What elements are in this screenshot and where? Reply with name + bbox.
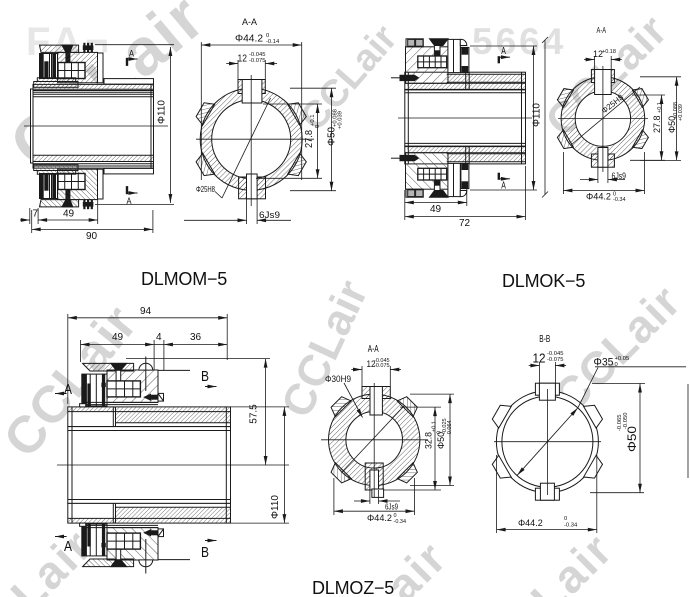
svg-text:+0.039: +0.039 — [338, 111, 344, 129]
svg-text:6Js9: 6Js9 — [385, 503, 398, 512]
svg-text:Φ110: Φ110 — [532, 103, 543, 127]
svg-text:-0.050: -0.050 — [623, 413, 629, 429]
svg-text:-0.34: -0.34 — [564, 523, 578, 529]
svg-text:+0.18: +0.18 — [602, 49, 616, 55]
svg-text:6Js9: 6Js9 — [259, 210, 280, 221]
svg-text:0: 0 — [315, 125, 321, 128]
svg-text:72: 72 — [459, 218, 471, 229]
svg-text:A-A: A-A — [597, 25, 607, 35]
svg-text:-0.064: -0.064 — [447, 420, 453, 436]
svg-text:-0.075: -0.075 — [374, 363, 390, 369]
svg-text:Φ110: Φ110 — [270, 495, 281, 519]
svg-text:90: 90 — [86, 231, 98, 242]
svg-text:DLMOZ−5: DLMOZ−5 — [312, 578, 394, 597]
svg-text:B: B — [201, 368, 209, 385]
svg-text:49: 49 — [430, 204, 442, 215]
svg-text:+0.1: +0.1 — [657, 102, 663, 113]
svg-text:12: 12 — [533, 352, 546, 366]
svg-text:0: 0 — [564, 516, 567, 522]
svg-text:4: 4 — [156, 332, 162, 343]
svg-text:Φ44.2: Φ44.2 — [235, 34, 263, 45]
svg-text:A-A: A-A — [368, 343, 379, 355]
svg-text:49: 49 — [112, 332, 124, 343]
svg-text:-0.14: -0.14 — [266, 39, 280, 45]
svg-text:-0.34: -0.34 — [394, 519, 407, 525]
svg-text:Φ44.2: Φ44.2 — [586, 192, 611, 203]
svg-text:27.8: 27.8 — [652, 115, 662, 133]
svg-text:27.8: 27.8 — [304, 130, 315, 148]
svg-text:A: A — [501, 46, 506, 57]
svg-text:Φ44.2: Φ44.2 — [518, 518, 543, 528]
svg-text:-0.34: -0.34 — [613, 197, 626, 203]
svg-text:A: A — [64, 538, 72, 555]
svg-text:7: 7 — [33, 209, 39, 220]
svg-text:B: B — [201, 544, 209, 561]
svg-text:Φ30H9: Φ30H9 — [325, 374, 351, 385]
svg-text:Φ25H8: Φ25H8 — [196, 185, 215, 194]
svg-text:A-A: A-A — [242, 17, 257, 27]
svg-text:-0.075: -0.075 — [547, 357, 563, 363]
svg-text:DLMOK−5: DLMOK−5 — [502, 271, 585, 291]
svg-text:+0.1: +0.1 — [432, 421, 438, 432]
svg-text:49: 49 — [63, 209, 75, 220]
svg-text:Φ50: Φ50 — [327, 126, 338, 146]
svg-text:6Js9: 6Js9 — [612, 171, 627, 181]
svg-text:36: 36 — [190, 332, 202, 343]
svg-text:A: A — [129, 48, 134, 58]
svg-text:32.8: 32.8 — [424, 432, 434, 449]
svg-text:12: 12 — [238, 54, 248, 65]
svg-text:B-B: B-B — [539, 333, 550, 345]
svg-text:-0.065: -0.065 — [617, 415, 623, 431]
svg-text:CCLair: CCLair — [471, 523, 623, 597]
svg-text:-0.075: -0.075 — [249, 58, 265, 64]
svg-text:DLMOM−5: DLMOM−5 — [141, 269, 227, 289]
svg-text:94: 94 — [140, 306, 152, 317]
svg-text:5664: 5664 — [472, 21, 566, 62]
svg-text:+0.1: +0.1 — [310, 115, 316, 126]
svg-text:Φ110: Φ110 — [157, 100, 168, 124]
svg-text:+0.039: +0.039 — [678, 104, 684, 121]
svg-text:Φ44.2: Φ44.2 — [367, 513, 392, 524]
